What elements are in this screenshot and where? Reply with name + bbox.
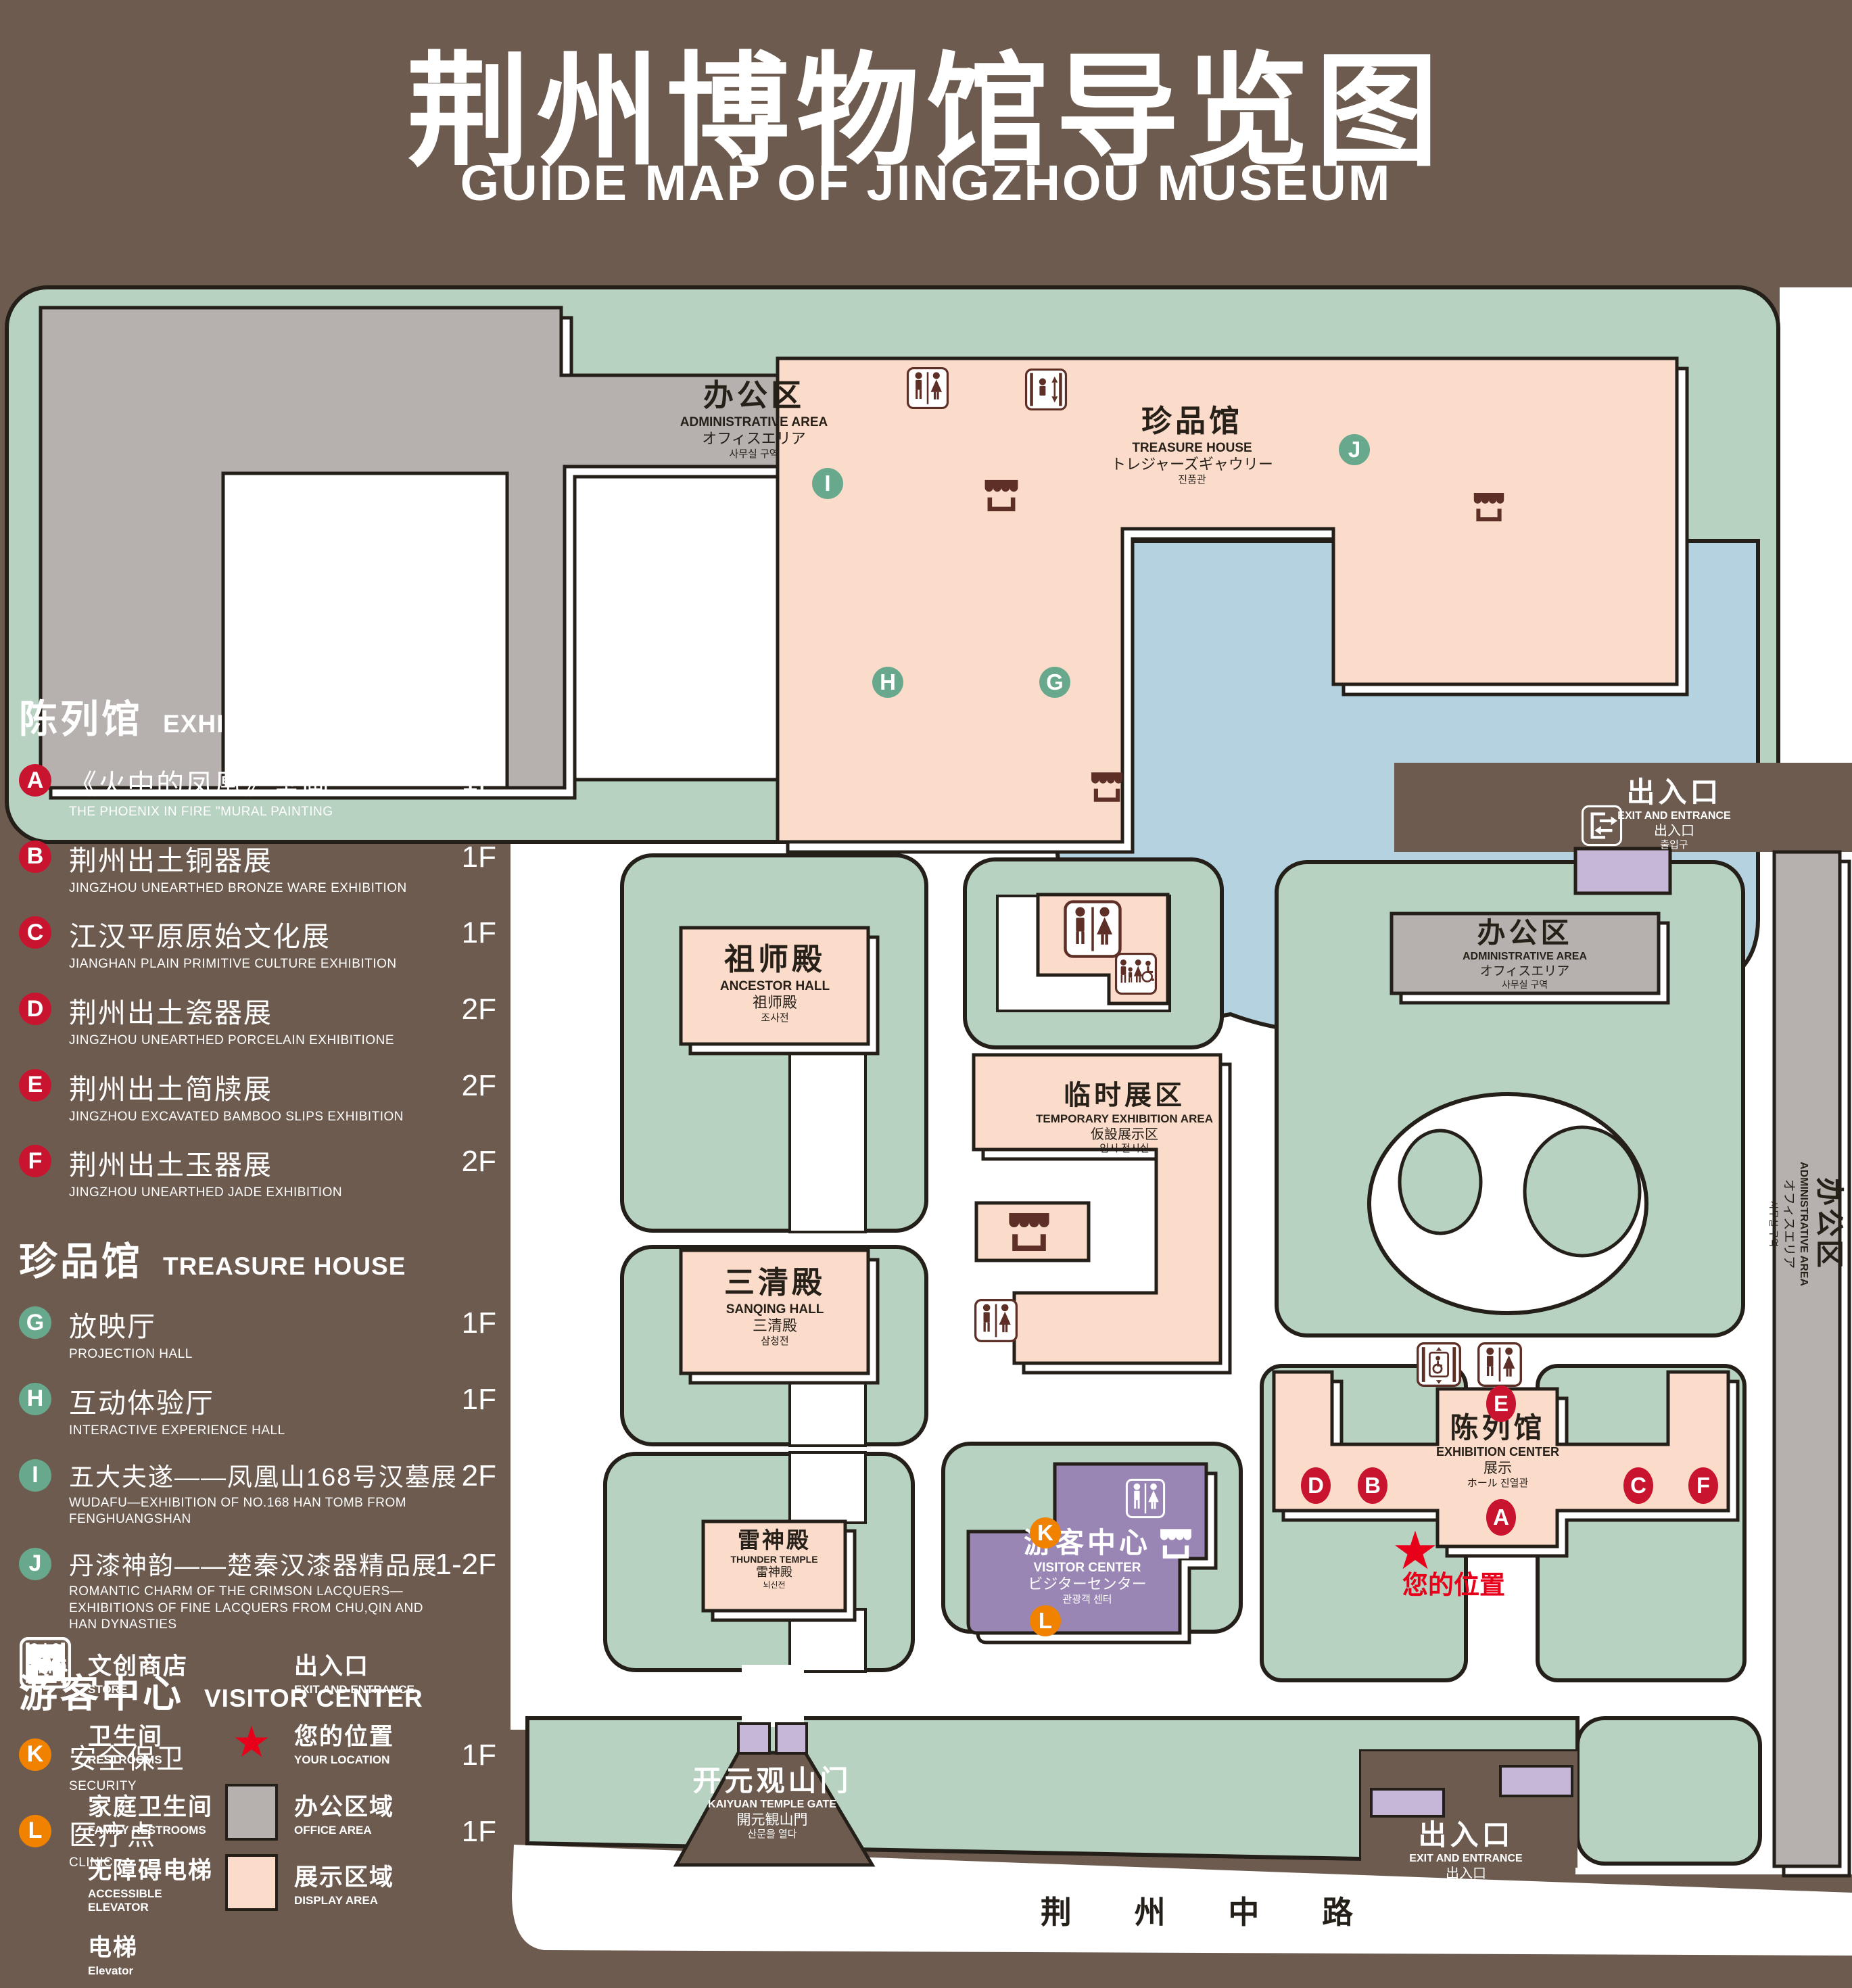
badge-f: F <box>19 1145 51 1177</box>
legend-office-area: 办公区域OFFICE AREA <box>225 1777 503 1847</box>
accessible-elevator-icon <box>1418 1344 1461 1386</box>
marker-l: L <box>1030 1605 1061 1636</box>
legend-accessible-elevator: 无障碍电梯ACCESSIBLE ELEVATOR <box>19 1847 225 1918</box>
legend-item-g: G 放映厅 PROJECTION HALL 1F <box>19 1296 500 1372</box>
family-restroom-icon <box>19 1786 72 1839</box>
marker-c: C <box>1623 1467 1653 1504</box>
badge-a: A <box>19 764 51 797</box>
badge-b: B <box>19 841 51 873</box>
legend-item-h: H 互动体验厅 INTERACTIVE EXPERIENCE HALL 1F <box>19 1372 500 1448</box>
legend-item-i: I 五大夫遂——凤凰山168号汉墓展 WUDAFU—EXHIBITION OF … <box>19 1448 500 1537</box>
marker-g: G <box>1039 667 1070 698</box>
badge-e: E <box>19 1069 51 1102</box>
badge-d: D <box>19 993 51 1025</box>
elevator-icon <box>1026 370 1066 410</box>
your-location-star-icon: ★ <box>225 1715 278 1768</box>
label-exit-top: 出入口 EXIT AND ENTRANCE 出入口 출입구 <box>1617 775 1730 851</box>
label-admin-area-side: 办公区 ADMINISTRATIVE AREA オフィスエリア 사무실 구역 <box>1767 1162 1847 1286</box>
label-exhibition-center: 陈列馆 EXHIBITION CENTER 展示 ホール 진열관 <box>1436 1411 1559 1490</box>
label-thunder-temple: 雷神殿 THUNDER TEMPLE 雷神殿 뇌신전 <box>730 1527 817 1590</box>
accessible-elevator-icon <box>19 1856 72 1909</box>
legend-exit: 出入口EXIT AND ENTRANCE <box>225 1636 503 1707</box>
legend-item-c: C 江汉平原原始文化展 JIANGHAN PLAIN PRIMITIVE CUL… <box>19 905 500 982</box>
label-your-location: 您的位置 <box>1402 1570 1505 1601</box>
label-sanqing-hall: 三清殿 SANQING HALL 三清殿 삼청전 <box>724 1264 826 1348</box>
legend-item-j: J 丹漆神韵——楚秦汉漆器精品展 ROMANTIC CHARM OF THE C… <box>19 1537 500 1642</box>
label-admin-area-mid: 办公区 ADMINISTRATIVE AREA オフィスエリア 사무실 구역 <box>1463 916 1587 991</box>
legend-section-treasure-house: 珍品馆 TREASURE HOUSE <box>19 1231 500 1286</box>
guide-map-poster: 荆州博物馆导览图 GUIDE MAP OF JINGZHOU MUSEUM 办公… <box>0 0 1852 1980</box>
label-kaiyuan-gate: 开元观山门 KAIYUAN TEMPLE GATE 開元観山門 산문을 열다 <box>692 1764 851 1841</box>
marker-b: B <box>1358 1467 1387 1504</box>
symbol-legend: 文创商店STORE 出入口EXIT AND ENTRANCE 卫生间RESTRO… <box>19 1636 503 1988</box>
marker-i: I <box>812 468 843 499</box>
marker-k: K <box>1030 1517 1061 1548</box>
restroom-icon <box>19 1715 72 1768</box>
restroom-icon <box>908 369 948 408</box>
legend-item-a: A 《火中的凤凰》壁画 THE PHOENIX IN FIRE "MURAL P… <box>19 753 500 830</box>
legend-item-b: B 荆州出土铜器展 JINGZHOU UNEARTHED BRONZE WARE… <box>19 830 500 906</box>
badge-g: G <box>19 1306 51 1339</box>
legend-your-location: ★ 您的位置YOUR LOCATION <box>225 1707 503 1777</box>
office-area-swatch <box>225 1784 278 1841</box>
elevator-icon <box>19 1926 72 1979</box>
restroom-icon <box>976 1300 1017 1342</box>
legend-item-d: D 荆州出土瓷器展 JINGZHOU UNEARTHED PORCELAIN E… <box>19 982 500 1058</box>
label-ancestor-hall: 祖师殿 ANCESTOR HALL 祖师殿 조사전 <box>720 941 830 1024</box>
marker-h: H <box>872 667 903 698</box>
your-location-star-icon: ★ <box>1392 1524 1439 1577</box>
exit-icon <box>225 1645 278 1698</box>
page-subtitle: GUIDE MAP OF JINGZHOU MUSEUM <box>0 154 1852 212</box>
legend-restrooms: 卫生间RESTROOMS <box>19 1707 225 1777</box>
legend-section-exhibition-center: 陈列馆 EXHIBITION CENTER <box>19 688 500 744</box>
legend-item-f: F 荆州出土玉器展 JINGZHOU UNEARTHED JADE EXHIBI… <box>19 1134 500 1210</box>
marker-a: A <box>1486 1499 1516 1536</box>
badge-h: H <box>19 1383 51 1415</box>
marker-d: D <box>1301 1467 1331 1504</box>
badge-c: C <box>19 916 51 949</box>
marker-e: E <box>1486 1386 1516 1422</box>
label-temporary-exhibition: 临时展区 TEMPORARY EXHIBITION AREA 仮設展示区 임시 … <box>1036 1079 1213 1155</box>
label-exit-bottom: 出入口 EXIT AND ENTRANCE 出入口 출입구 <box>1409 1818 1522 1894</box>
label-admin-area-top: 办公区 ADMINISTRATIVE AREA オフィスエリア 사무실 구역 <box>680 377 828 460</box>
restroom-icon <box>1479 1344 1521 1386</box>
legend-item-e: E 荆州出土简牍展 JINGZHOU EXCAVATED BAMBOO SLIP… <box>19 1058 500 1135</box>
legend-family-restrooms: 家庭卫生间FAMILY RESTROOMS <box>19 1777 225 1847</box>
badge-j: J <box>19 1548 51 1580</box>
label-treasure-house: 珍品馆 TREASURE HOUSE トレジャーズギャウリー 진품관 <box>1111 403 1273 486</box>
family-restroom-icon <box>1116 954 1156 994</box>
marker-j: J <box>1339 434 1370 465</box>
marker-f: F <box>1688 1467 1718 1504</box>
legend-display-area: 展示区域DISPLAY AREA <box>225 1847 503 1918</box>
label-road: 荆 州 中 路 <box>1041 1893 1380 1931</box>
badge-i: I <box>19 1459 51 1492</box>
display-area-swatch <box>225 1854 278 1911</box>
legend-elevator: 电梯Elevator <box>19 1918 225 1988</box>
restroom-icon <box>1066 902 1120 957</box>
